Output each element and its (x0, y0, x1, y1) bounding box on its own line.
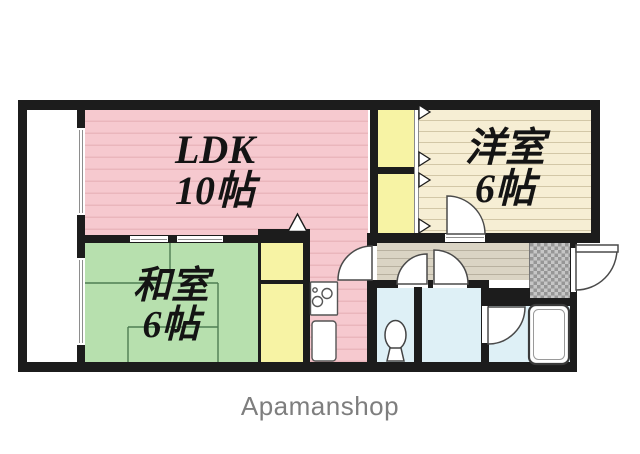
room-label-ldk: LDK 10帖 (130, 129, 300, 211)
fixtures-overlay (0, 0, 640, 454)
door-swing-toilet (397, 254, 427, 284)
sink-icon (312, 321, 336, 361)
room-name: LDK (130, 129, 300, 170)
door-swing-washroom (434, 250, 468, 284)
floor-plan-page: LDK 10帖 洋室 6帖 和室 6帖 Apamanshop (0, 0, 640, 454)
stove-icon (311, 282, 338, 315)
room-size: 6帖 (420, 168, 590, 209)
door-swing-bathroom (488, 307, 525, 344)
front-door-swing (576, 249, 617, 290)
room-size: 6帖 (85, 306, 257, 345)
room-size: 10帖 (130, 170, 300, 211)
front-door-leaf (576, 245, 618, 252)
room-name: 和室 (85, 267, 257, 306)
brand-logo: Apamanshop (0, 391, 640, 422)
door-swing-ldk (338, 246, 372, 280)
room-label-western: 洋室 6帖 (420, 127, 590, 209)
toilet-icon (385, 321, 406, 362)
room-label-japanese: 和室 6帖 (85, 267, 257, 345)
room-name: 洋室 (420, 127, 590, 168)
bathtub-icon (529, 305, 569, 364)
vent-triangle-icon (288, 214, 307, 232)
